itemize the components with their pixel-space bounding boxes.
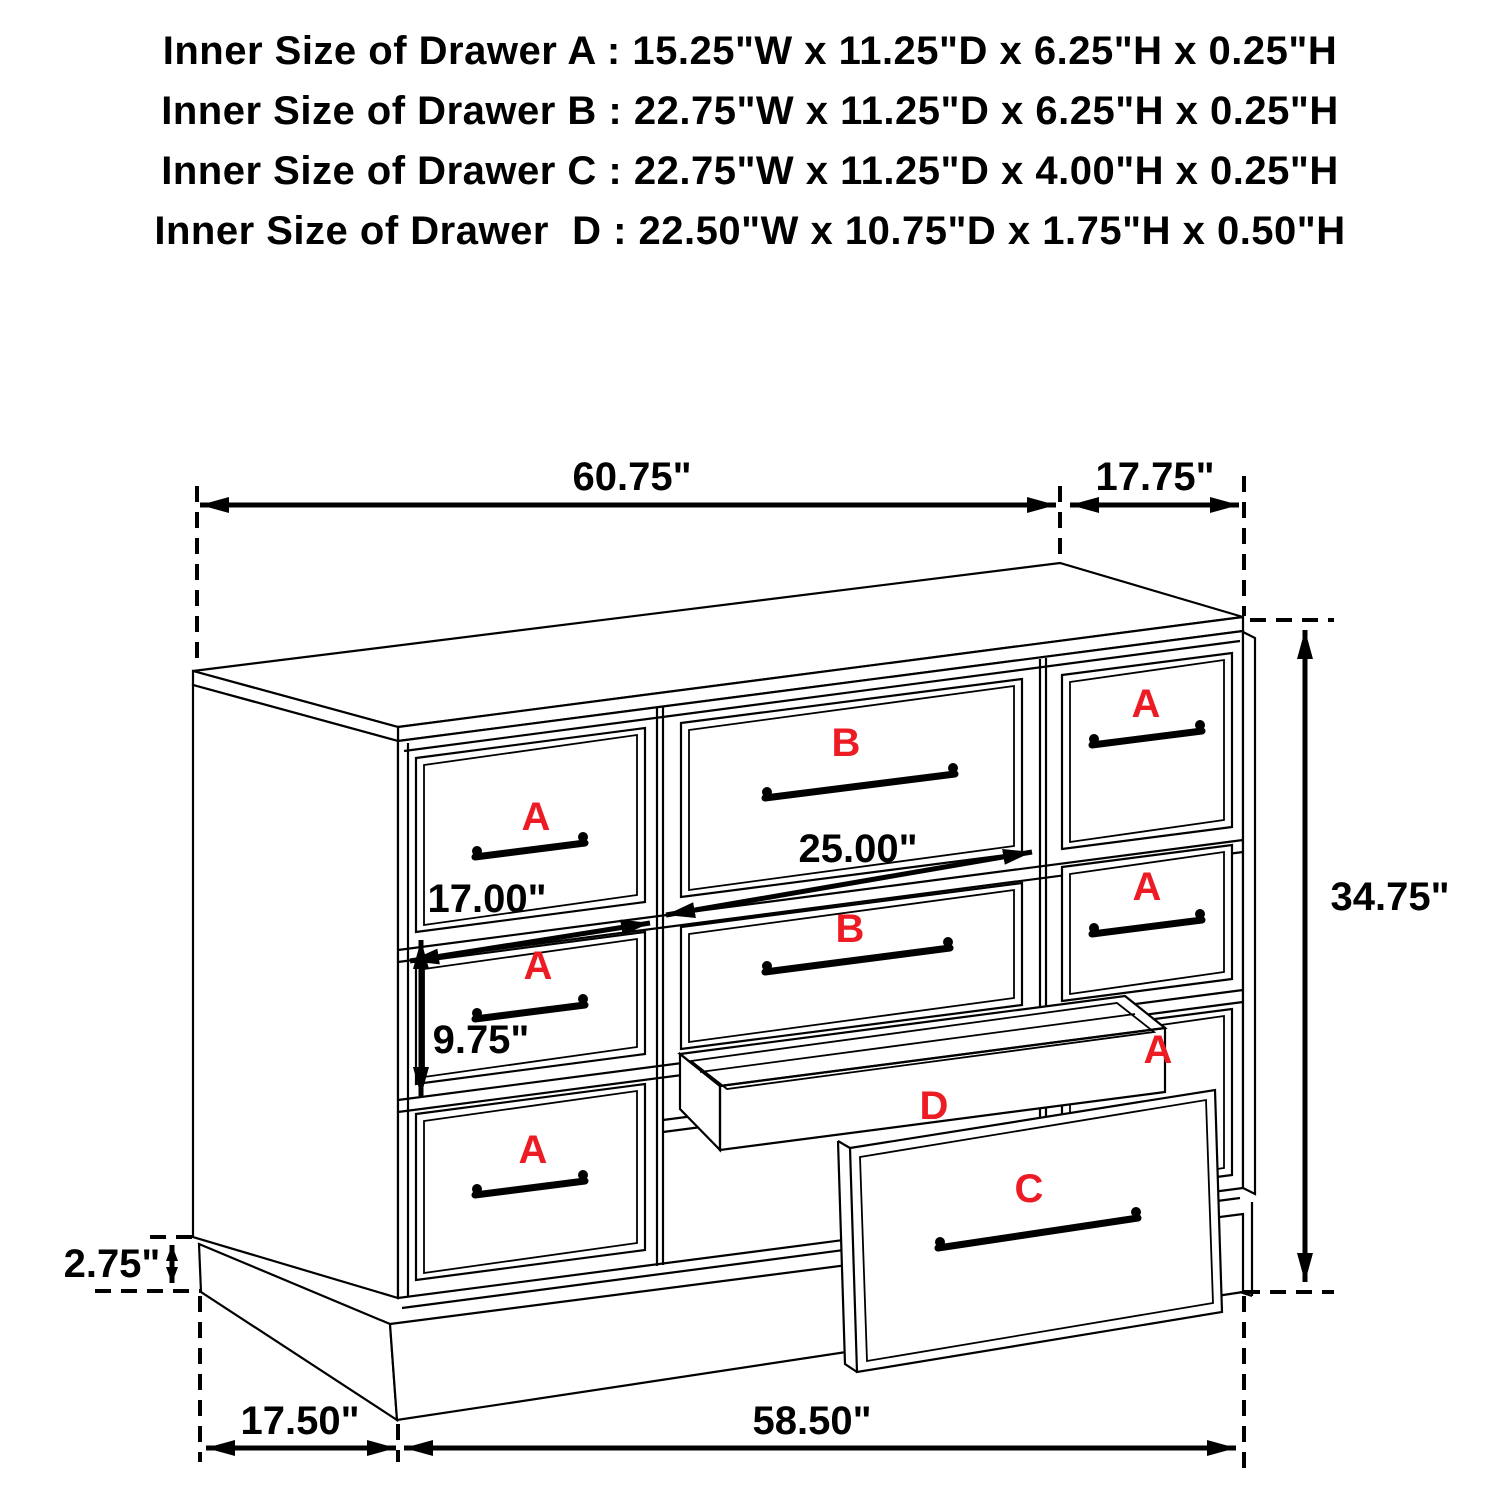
dresser-dimension-diagram-page: Inner Size of Drawer A : 15.25"W x 11.25…: [0, 0, 1500, 1500]
dim-drawer-b-width-label: 25.00": [798, 827, 917, 871]
cabinet-right-edge: [1243, 632, 1255, 1194]
spec-line-drawer-a: Inner Size of Drawer A : 15.25"W x 11.25…: [163, 29, 1338, 73]
drawer-face-left-bottom: [416, 1084, 645, 1280]
dim-cabinet-depth-label: 17.75": [1095, 455, 1214, 499]
dim-drawer-a-width-label: 17.00": [427, 877, 546, 921]
letter-left-top: A: [522, 795, 551, 839]
dim-cabinet-depth: 17.75": [1070, 455, 1239, 505]
dim-base-height-label: 2.75": [64, 1242, 161, 1286]
dim-drawer-a-height-label: 9.75": [433, 1018, 530, 1062]
letter-middle-second: B: [836, 907, 865, 951]
dim-cabinet-height: 34.75": [1305, 630, 1450, 1282]
dim-base-width: 58.50": [404, 1399, 1236, 1448]
letter-right-top: A: [1132, 682, 1161, 726]
letter-drawer-c: C: [1015, 1167, 1044, 1211]
dim-base-width-label: 58.50": [752, 1399, 871, 1443]
letter-middle-top: B: [832, 721, 861, 765]
dim-cabinet-width: 60.75": [200, 455, 1056, 505]
spec-line-drawer-d: Inner Size of Drawer D : 22.50"W x 10.75…: [154, 209, 1345, 253]
letter-left-middle: A: [524, 944, 553, 988]
dim-cabinet-height-label: 34.75": [1330, 875, 1449, 919]
spec-line-drawer-c: Inner Size of Drawer C : 22.75"W x 11.25…: [161, 149, 1338, 193]
dim-base-height: 2.75": [64, 1242, 172, 1286]
letter-right-middle: A: [1133, 865, 1162, 909]
dim-base-depth: 17.50": [206, 1399, 396, 1448]
letter-right-bottom: A: [1144, 1028, 1173, 1072]
dim-cabinet-width-label: 60.75": [572, 455, 691, 499]
dresser-dimension-diagram: Inner Size of Drawer A : 15.25"W x 11.25…: [0, 0, 1500, 1500]
letter-tray-d: D: [920, 1084, 949, 1128]
dim-base-depth-label: 17.50": [240, 1399, 359, 1443]
title-block: Inner Size of Drawer A : 15.25"W x 11.25…: [154, 29, 1345, 253]
spec-line-drawer-b: Inner Size of Drawer B : 22.75"W x 11.25…: [161, 89, 1338, 133]
letter-left-bottom: A: [519, 1128, 548, 1172]
cabinet-left-side-panel: [193, 685, 398, 1298]
